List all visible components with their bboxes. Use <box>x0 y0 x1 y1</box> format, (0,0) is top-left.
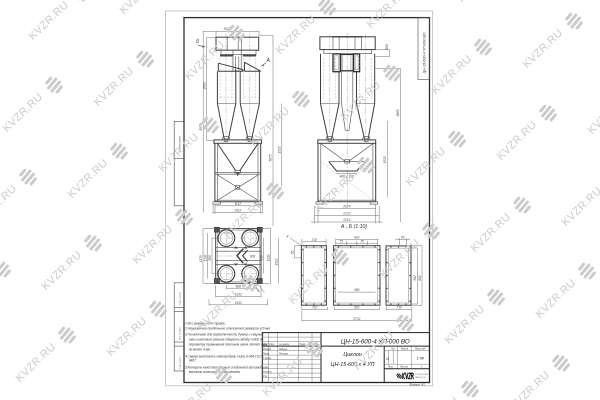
svg-text:950: 950 <box>259 255 263 261</box>
svg-text:9467.: 9467. <box>189 359 197 363</box>
svg-text:1:40: 1:40 <box>417 356 425 360</box>
svg-text:Масштаб: Масштаб <box>415 348 426 351</box>
svg-text:Пров.: Пров. <box>263 352 270 355</box>
svg-text:Формат А3: Формат А3 <box>410 382 425 386</box>
svg-text:450: 450 <box>354 288 360 292</box>
svg-text:608: 608 <box>236 284 242 288</box>
svg-text:ЦН-15-600-4 УП-000 ВО: ЦН-15-600-4 УП-000 ВО <box>423 32 427 73</box>
svg-text:642: 642 <box>418 275 422 281</box>
svg-text:3 На монтаже для герметичност: 3 На монтаже для герметичности бункер и … <box>185 332 264 336</box>
svg-text:Разраб.: Разраб. <box>263 348 272 351</box>
svg-text:40: 40 <box>401 236 405 240</box>
svg-text:Изм: Изм <box>263 343 268 346</box>
svg-text:1525: 1525 <box>383 156 387 163</box>
svg-text:2214: 2214 <box>342 218 350 222</box>
svg-text:Иванов: Иванов <box>279 348 288 351</box>
svg-text:3080: 3080 <box>202 82 206 89</box>
svg-text:420: 420 <box>354 236 360 240</box>
svg-text:800: 800 <box>385 44 389 50</box>
svg-text:600: 600 <box>250 254 256 258</box>
svg-text:Подп. и дата: Подп. и дата <box>180 291 182 305</box>
svg-text:Подп. и дата: Подп. и дата <box>180 356 182 370</box>
svg-text:1512: 1512 <box>274 258 278 265</box>
svg-text:не менее 4 мм.: не менее 4 мм. <box>189 348 211 352</box>
svg-text:Т.контр.: Т.контр. <box>263 357 272 360</box>
svg-text:А , Б (1:10): А , Б (1:10) <box>340 224 367 230</box>
svg-text:1132: 1132 <box>266 254 270 261</box>
svg-text:Лист: Лист <box>269 343 275 346</box>
svg-text:КОТЕЛЬНЫЙ: КОТЕЛЬНЫЙ <box>415 373 429 376</box>
svg-text:№ докум.: № докум. <box>279 343 290 346</box>
svg-text:1732: 1732 <box>353 317 360 321</box>
svg-text:Листов: Листов <box>400 366 408 369</box>
svg-text:2132: 2132 <box>342 212 350 216</box>
svg-text:1132: 1132 <box>203 254 207 261</box>
svg-text:Лит.: Лит. <box>391 348 396 351</box>
svg-text:592: 592 <box>413 275 417 281</box>
svg-text:502: 502 <box>354 306 360 310</box>
svg-text:Петров: Петров <box>279 352 289 355</box>
svg-text:1112: 1112 <box>234 202 241 206</box>
svg-text:710: 710 <box>396 306 402 310</box>
svg-text:Масса: Масса <box>401 348 409 351</box>
svg-text:5875: 5875 <box>269 154 273 161</box>
svg-text:950: 950 <box>208 255 212 261</box>
svg-text:5 Контроль качества сборных с: 5 Контроль качества сборных соединений п… <box>185 365 268 369</box>
svg-text:50: 50 <box>290 251 294 255</box>
svg-text:ЗАВОД.РФ: ЗАВОД.РФ <box>415 376 426 379</box>
svg-text:Утв.: Утв. <box>263 375 268 378</box>
svg-text:Инв. № дубл.: Инв. № дубл. <box>179 326 182 340</box>
svg-text:1512: 1512 <box>234 209 241 213</box>
svg-text:И: И <box>386 357 389 361</box>
svg-text:4: 4 <box>287 235 289 239</box>
svg-text:3805: 3805 <box>396 109 400 116</box>
svg-text:4 Сварку выполнить электродам: 4 Сварку выполнить электродами типа Э-46… <box>185 354 264 358</box>
svg-text:1270: 1270 <box>199 255 203 262</box>
svg-text:75: 75 <box>339 239 343 243</box>
svg-text:2024: 2024 <box>342 205 350 209</box>
svg-text:периметру примыкания плотным ш: периметру примыкания плотным швом. Катет… <box>189 343 267 347</box>
svg-text:Лист: Лист <box>388 366 394 369</box>
svg-text:А: А <box>266 58 271 64</box>
svg-text:б: б <box>196 39 199 45</box>
svg-text:710: 710 <box>311 238 317 242</box>
svg-text:2 Неуказанные предельные откл: 2 Неуказанные предельные отклонения разм… <box>184 327 270 331</box>
svg-text:Подп.: Подп. <box>300 343 307 346</box>
svg-text:710: 710 <box>312 306 318 310</box>
svg-text:1525: 1525 <box>277 146 281 153</box>
svg-text:швы шахтовых звеньев обварить: швы шахтовых звеньев обварить между собо… <box>189 338 264 342</box>
svg-text:Н.контр.: Н.контр. <box>263 370 273 373</box>
svg-text:75: 75 <box>360 239 364 243</box>
